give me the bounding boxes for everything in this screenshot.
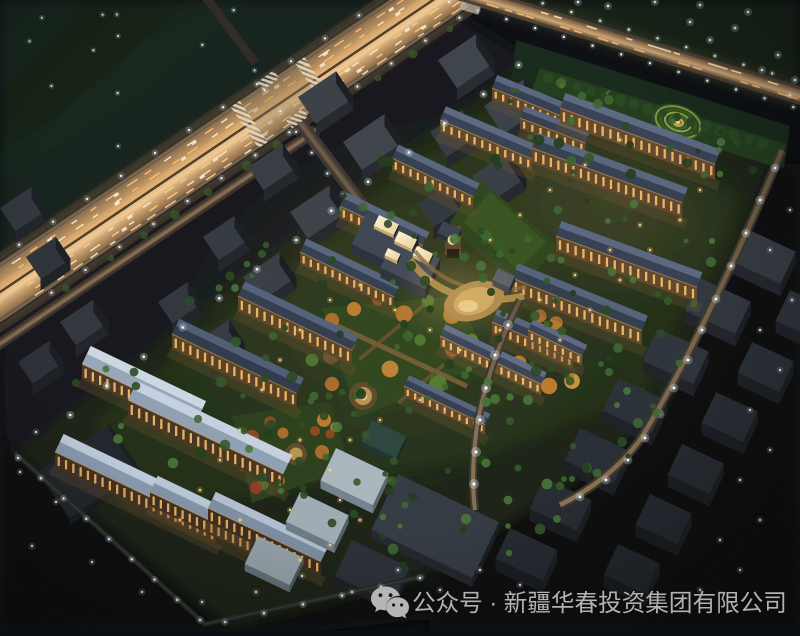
svg-text:公众号 · 新疆华春投资集团有限公司: 公众号 · 新疆华春投资集团有限公司 xyxy=(412,590,787,617)
